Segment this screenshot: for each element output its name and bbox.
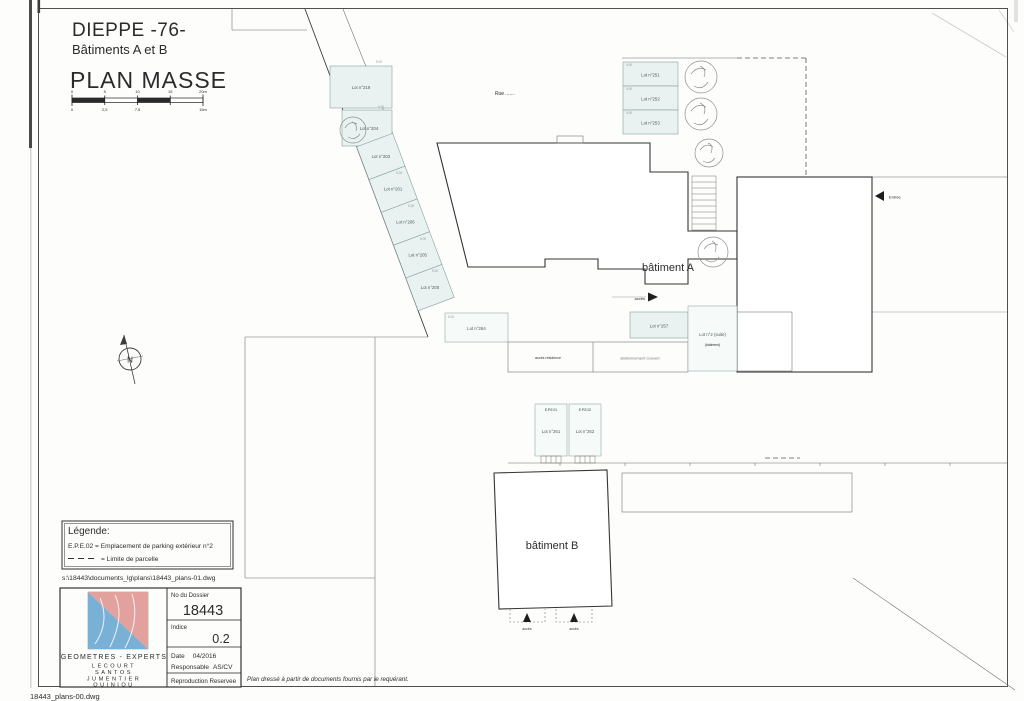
building-b-label: bâtiment B bbox=[526, 540, 579, 552]
svg-text:5.00: 5.00 bbox=[626, 111, 632, 115]
title-block: DIEPPE -76- Bâtiments A et B PLAN MASSE bbox=[70, 20, 227, 93]
svg-text:Lot n°251: Lot n°251 bbox=[641, 73, 660, 78]
building-b: bâtiment B bbox=[494, 470, 612, 609]
access-marker-a: accès bbox=[612, 293, 658, 302]
svg-text:Lot n°201: Lot n°201 bbox=[384, 187, 403, 192]
cartouche: GEOMETRES - EXPERTS LECOURT SANTOS JUMEN… bbox=[60, 588, 241, 689]
svg-text:stationnement couvert: stationnement couvert bbox=[620, 356, 660, 361]
svg-text:accès: accès bbox=[522, 627, 531, 631]
svg-text:Lot n°253: Lot n°253 bbox=[641, 121, 660, 126]
plan-masse-drawing: Lot n°219 Lot n°204 5.00 5.00 Lot n°203 … bbox=[0, 0, 1024, 701]
strip-building bbox=[622, 473, 852, 512]
svg-text:E.P.E.02: E.P.E.02 bbox=[579, 408, 591, 412]
svg-text:E.P.E.01: E.P.E.01 bbox=[545, 408, 557, 412]
epe-parking-spots: E.P.E.01 E.P.E.02 Lot n°261 Lot n°262 bbox=[535, 404, 601, 463]
corner-file-path: 18443_plans-00.dwg bbox=[30, 692, 100, 701]
svg-text:Lot n°200: Lot n°200 bbox=[421, 285, 440, 290]
dossier-label: No du Dossier bbox=[171, 593, 209, 599]
legend-epe-line: E.P.E.02 = Emplacement de parking extéri… bbox=[68, 542, 213, 550]
parking-cells-diagonal: Lot n°203 Lot n°201 Lot n°206 Lot n°205 … bbox=[357, 133, 455, 310]
svg-text:5.00: 5.00 bbox=[420, 237, 426, 241]
svg-text:5.00: 5.00 bbox=[432, 269, 438, 273]
building-a-label: bâtiment A bbox=[642, 262, 695, 274]
svg-text:5.00: 5.00 bbox=[626, 87, 632, 91]
reproduction-note: Reproduction Reservee bbox=[171, 678, 237, 685]
svg-text:accès: accès bbox=[569, 627, 578, 631]
svg-text:Lot n°203: Lot n°203 bbox=[372, 154, 391, 159]
svg-text:SANTOS: SANTOS bbox=[95, 670, 133, 676]
svg-text:15m: 15m bbox=[199, 107, 207, 112]
svg-text:LECOURT: LECOURT bbox=[92, 664, 136, 670]
legend-title: Légende: bbox=[68, 526, 110, 537]
legend-box: Légende: E.P.E.02 = Emplacement de parki… bbox=[62, 521, 233, 569]
svg-text:20m: 20m bbox=[199, 89, 207, 94]
mid-plan-boxes: Lot n°264 5.00 stationnement couvert acc… bbox=[445, 306, 737, 372]
svg-text:Lot n°2 (suite): Lot n°2 (suite) bbox=[699, 332, 726, 337]
svg-text:5.00: 5.00 bbox=[396, 171, 402, 175]
entrance-marker-right: Entrée bbox=[875, 191, 902, 201]
svg-text:0: 0 bbox=[71, 107, 74, 112]
north-compass-icon: N bbox=[117, 335, 143, 384]
svg-text:N: N bbox=[127, 356, 133, 365]
svg-text:accès résidence: accès résidence bbox=[535, 356, 561, 360]
drafting-note: Plan dressé à partir de documents fourni… bbox=[247, 676, 409, 683]
svg-text:Lot n°219: Lot n°219 bbox=[352, 85, 371, 90]
tree-icon bbox=[685, 61, 717, 93]
legend-limit-line: = Limite de parcelle bbox=[101, 556, 159, 563]
responsable-row: ResponsableAS/CV bbox=[171, 664, 233, 671]
svg-text:Lot n°205: Lot n°205 bbox=[408, 252, 427, 257]
tree-icon bbox=[695, 139, 723, 167]
svg-text:15: 15 bbox=[168, 89, 173, 94]
svg-text:Lot n°252: Lot n°252 bbox=[641, 97, 660, 102]
svg-text:5.00: 5.00 bbox=[408, 204, 414, 208]
svg-text:Lot n°261: Lot n°261 bbox=[542, 429, 561, 434]
svg-text:(bâtiment): (bâtiment) bbox=[705, 343, 720, 347]
svg-text:7,5: 7,5 bbox=[135, 107, 141, 112]
scanned-plan-sheet: Lot n°219 Lot n°204 5.00 5.00 Lot n°203 … bbox=[0, 0, 1024, 701]
indice-value: 0.2 bbox=[212, 632, 229, 646]
svg-text:Lot n°204: Lot n°204 bbox=[360, 126, 379, 131]
svg-text:Lot n°257: Lot n°257 bbox=[650, 324, 669, 329]
svg-text:QUINIOU: QUINIOU bbox=[93, 683, 134, 689]
street-label: Rue ....... bbox=[495, 91, 515, 97]
parking-cells-top-right: Lot n°251 Lot n°252 Lot n°253 5.00 5.00 … bbox=[623, 62, 678, 134]
svg-text:5.00: 5.00 bbox=[626, 63, 632, 67]
source-file-path: s:\18443\documents_lg\plans\18443_plans-… bbox=[62, 575, 216, 582]
plan-subtitle: Bâtiments A et B bbox=[72, 42, 167, 57]
svg-text:Lot n°206: Lot n°206 bbox=[396, 220, 415, 225]
surveyor-logo bbox=[88, 592, 148, 649]
svg-text:2,5: 2,5 bbox=[102, 107, 108, 112]
svg-text:Entrée: Entrée bbox=[889, 195, 902, 200]
svg-text:10: 10 bbox=[135, 89, 140, 94]
plan-city-title: DIEPPE -76- bbox=[72, 20, 186, 41]
building-b-entrances: accès accès bbox=[510, 609, 592, 631]
parking-cells-top-left: Lot n°219 Lot n°204 5.00 5.00 bbox=[330, 60, 392, 146]
date-row: Date04/2016 bbox=[171, 653, 217, 660]
svg-text:Lot n°264: Lot n°264 bbox=[467, 326, 486, 331]
svg-text:5.00: 5.00 bbox=[378, 105, 384, 109]
svg-text:5.00: 5.00 bbox=[376, 60, 382, 64]
firm-name: GEOMETRES - EXPERTS bbox=[61, 654, 167, 661]
tree-icon bbox=[685, 98, 717, 130]
svg-text:Lot n°262: Lot n°262 bbox=[576, 429, 595, 434]
indice-label: Indice bbox=[171, 625, 188, 631]
svg-text:5.00: 5.00 bbox=[448, 315, 454, 319]
dossier-number: 18443 bbox=[183, 603, 223, 619]
